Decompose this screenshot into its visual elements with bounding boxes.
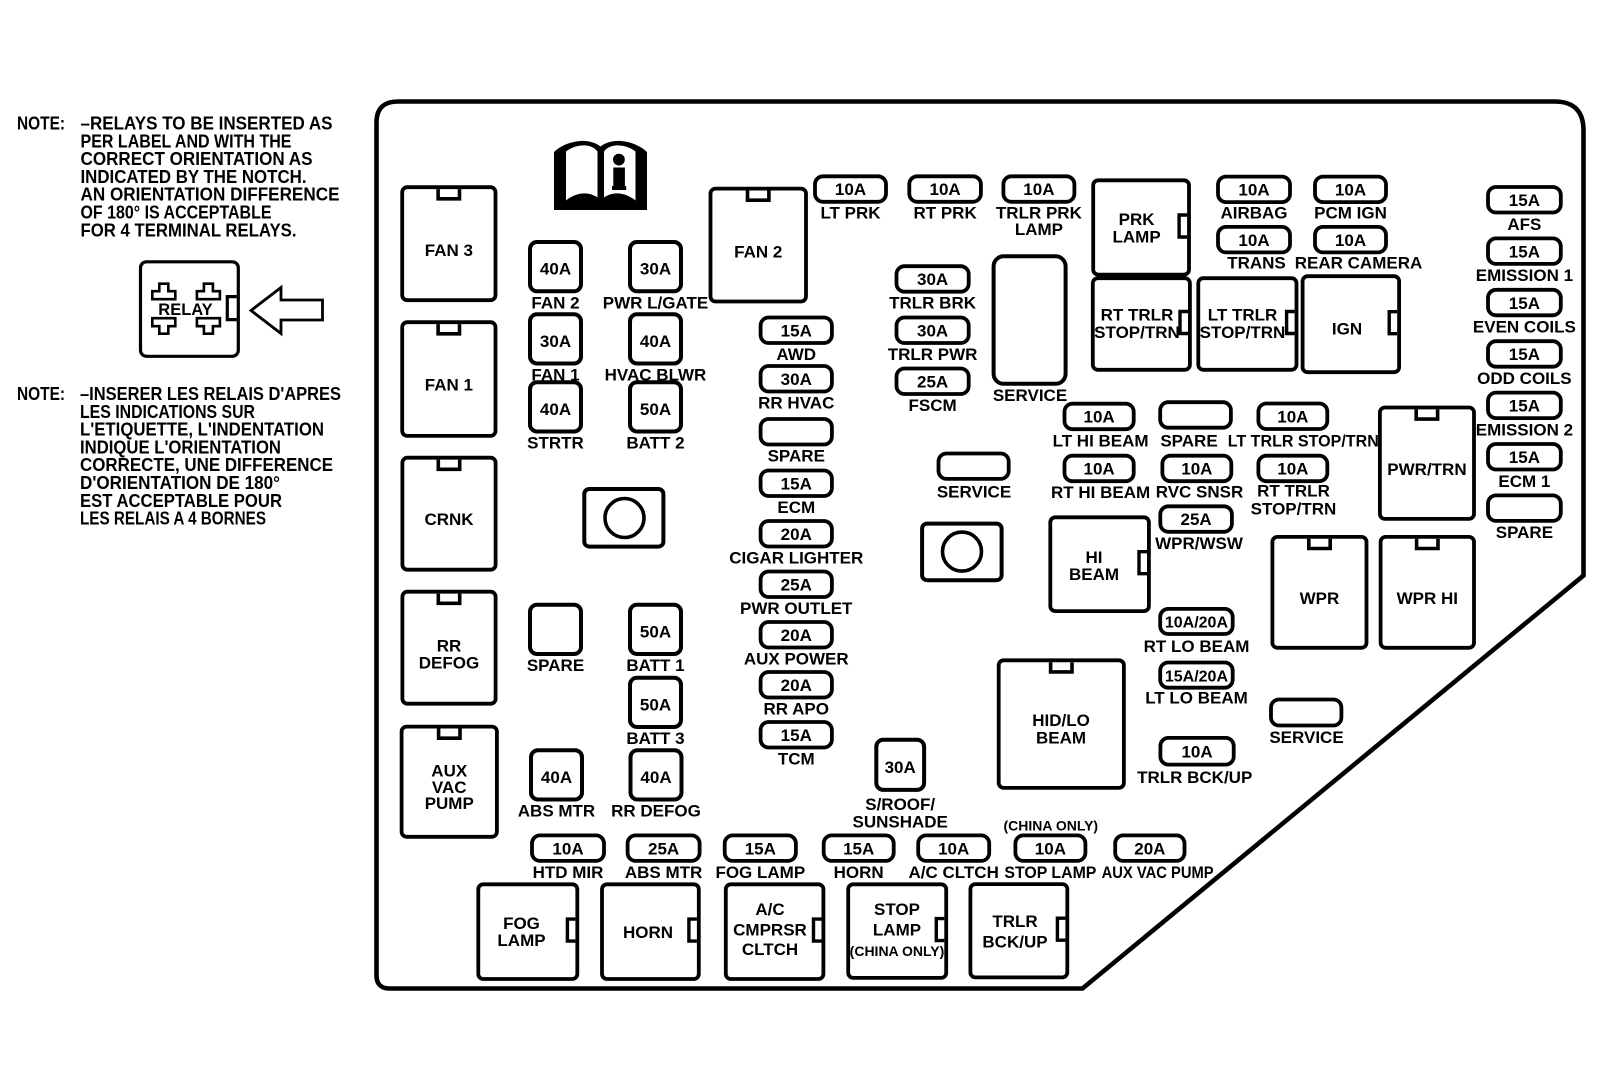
- svg-text:BEAM: BEAM: [1036, 729, 1086, 748]
- svg-text:BATT 2: BATT 2: [626, 434, 684, 453]
- svg-text:30A: 30A: [540, 332, 571, 351]
- svg-text:10A: 10A: [1084, 408, 1115, 427]
- svg-text:STOP LAMP: STOP LAMP: [1004, 863, 1096, 882]
- svg-text:15A: 15A: [1509, 191, 1540, 210]
- svg-text:15A: 15A: [745, 839, 776, 858]
- svg-text:FAN 2: FAN 2: [531, 293, 579, 312]
- svg-text:10A: 10A: [1277, 460, 1308, 479]
- svg-text:15A/20A: 15A/20A: [1165, 668, 1229, 685]
- svg-text:FAN 2: FAN 2: [734, 243, 782, 262]
- svg-text:BCK/UP: BCK/UP: [982, 932, 1047, 951]
- svg-text:10A: 10A: [1035, 839, 1066, 858]
- svg-text:A/C CLTCH: A/C CLTCH: [909, 863, 999, 882]
- svg-text:40A: 40A: [541, 768, 572, 787]
- svg-text:TCM: TCM: [778, 750, 815, 769]
- svg-text:20A: 20A: [781, 626, 812, 645]
- svg-text:BATT 3: BATT 3: [626, 729, 684, 748]
- svg-text:TRLR PWR: TRLR PWR: [888, 345, 978, 364]
- svg-text:10A: 10A: [1277, 407, 1308, 426]
- svg-text:10A: 10A: [1023, 180, 1054, 199]
- svg-text:IGN: IGN: [1332, 320, 1362, 339]
- svg-text:CLTCH: CLTCH: [742, 940, 798, 959]
- svg-text:LT PRK: LT PRK: [820, 204, 881, 223]
- svg-text:FOR 4 TERMINAL RELAYS.: FOR 4 TERMINAL RELAYS.: [81, 219, 297, 240]
- svg-text:LT TRLR: LT TRLR: [1208, 306, 1278, 325]
- svg-text:30A: 30A: [917, 270, 948, 289]
- svg-text:S/ROOF/: S/ROOF/: [865, 795, 935, 814]
- svg-text:FOG LAMP: FOG LAMP: [715, 863, 805, 882]
- svg-text:A/C: A/C: [755, 900, 784, 919]
- svg-text:ABS MTR: ABS MTR: [625, 863, 702, 882]
- svg-text:FAN 3: FAN 3: [425, 241, 473, 260]
- svg-text:NOTE:: NOTE:: [17, 113, 65, 134]
- svg-text:15A: 15A: [843, 839, 874, 858]
- svg-text:30A: 30A: [885, 758, 916, 777]
- svg-text:PWR L/GATE: PWR L/GATE: [603, 293, 708, 312]
- svg-text:RR HVAC: RR HVAC: [758, 394, 834, 413]
- svg-text:30A: 30A: [640, 260, 671, 279]
- svg-text:10A: 10A: [1335, 181, 1366, 200]
- svg-text:CMPRSR: CMPRSR: [733, 920, 807, 939]
- svg-text:RT TRLR: RT TRLR: [1257, 482, 1330, 501]
- svg-text:LAMP: LAMP: [1113, 227, 1161, 246]
- svg-text:PCM IGN: PCM IGN: [1314, 204, 1387, 223]
- svg-text:SPARE: SPARE: [768, 447, 825, 466]
- svg-text:REAR CAMERA: REAR CAMERA: [1295, 254, 1423, 273]
- svg-text:NOTE:: NOTE:: [17, 383, 65, 404]
- svg-text:40A: 40A: [540, 260, 571, 279]
- svg-text:WPR/WSW: WPR/WSW: [1155, 534, 1244, 553]
- svg-text:HORN: HORN: [623, 923, 673, 942]
- svg-text:10A: 10A: [930, 180, 961, 199]
- svg-text:FSCM: FSCM: [909, 396, 957, 415]
- svg-text:15A: 15A: [1509, 242, 1540, 261]
- svg-text:15A: 15A: [781, 726, 812, 745]
- svg-text:WPR HI: WPR HI: [1397, 589, 1458, 608]
- svg-text:15A: 15A: [1509, 294, 1540, 313]
- svg-text:PWR OUTLET: PWR OUTLET: [740, 599, 853, 618]
- svg-text:LAMP: LAMP: [873, 920, 921, 939]
- svg-text:(CHINA ONLY): (CHINA ONLY): [850, 943, 945, 959]
- svg-text:STRTR: STRTR: [527, 434, 584, 453]
- svg-text:AUX POWER: AUX POWER: [744, 650, 849, 669]
- svg-text:RVC SNSR: RVC SNSR: [1156, 483, 1244, 502]
- svg-text:10A: 10A: [835, 180, 866, 199]
- svg-text:LES RELAIS A 4 BORNES: LES RELAIS A 4 BORNES: [80, 508, 266, 529]
- svg-text:(CHINA ONLY): (CHINA ONLY): [1003, 818, 1098, 834]
- svg-text:RT HI BEAM: RT HI BEAM: [1051, 483, 1150, 502]
- svg-text:BATT 1: BATT 1: [626, 656, 684, 675]
- svg-text:SPARE: SPARE: [1160, 432, 1217, 451]
- svg-text:10A: 10A: [938, 839, 969, 858]
- svg-text:AWD: AWD: [776, 345, 816, 364]
- svg-text:STOP/TRN: STOP/TRN: [1094, 323, 1180, 342]
- svg-text:30A: 30A: [781, 370, 812, 389]
- svg-text:10A: 10A: [1181, 460, 1212, 479]
- svg-text:50A: 50A: [640, 622, 671, 641]
- svg-text:50A: 50A: [640, 400, 671, 419]
- svg-text:20A: 20A: [781, 525, 812, 544]
- svg-text:SPARE: SPARE: [1496, 523, 1553, 542]
- svg-text:SERVICE: SERVICE: [1269, 728, 1343, 747]
- svg-text:CRNK: CRNK: [424, 510, 474, 529]
- svg-text:PWR/TRN: PWR/TRN: [1387, 460, 1466, 479]
- svg-text:20A: 20A: [1134, 839, 1165, 858]
- svg-text:10A: 10A: [1084, 460, 1115, 479]
- svg-text:HTD MIR: HTD MIR: [533, 863, 604, 882]
- svg-text:WPR: WPR: [1300, 589, 1340, 608]
- svg-text:TRLR BRK: TRLR BRK: [889, 294, 977, 313]
- svg-text:LAMP: LAMP: [497, 931, 545, 950]
- svg-text:10A/20A: 10A/20A: [1165, 615, 1229, 632]
- svg-text:RR DEFOG: RR DEFOG: [611, 802, 701, 821]
- svg-text:LT HI BEAM: LT HI BEAM: [1053, 432, 1149, 451]
- svg-text:STOP: STOP: [874, 900, 920, 919]
- svg-text:10A: 10A: [552, 839, 583, 858]
- svg-text:SPARE: SPARE: [527, 656, 584, 675]
- svg-text:TRLR: TRLR: [992, 912, 1037, 931]
- svg-text:RR APO: RR APO: [764, 700, 830, 719]
- svg-text:10A: 10A: [1181, 743, 1212, 762]
- svg-text:ECM: ECM: [777, 498, 815, 517]
- svg-text:RT LO BEAM: RT LO BEAM: [1144, 637, 1250, 656]
- svg-text:10A: 10A: [1238, 231, 1269, 250]
- svg-text:EMISSION 1: EMISSION 1: [1476, 266, 1573, 285]
- svg-text:40A: 40A: [640, 768, 671, 787]
- svg-text:30A: 30A: [917, 321, 948, 340]
- svg-text:15A: 15A: [781, 321, 812, 340]
- svg-text:10A: 10A: [1238, 181, 1269, 200]
- svg-text:SERVICE: SERVICE: [937, 483, 1011, 502]
- svg-text:40A: 40A: [540, 400, 571, 419]
- svg-text:SUNSHADE: SUNSHADE: [852, 812, 947, 831]
- svg-text:TRLR BCK/UP: TRLR BCK/UP: [1137, 768, 1252, 787]
- svg-text:BEAM: BEAM: [1069, 565, 1119, 584]
- svg-text:FAN 1: FAN 1: [425, 375, 473, 394]
- svg-text:PUMP: PUMP: [425, 794, 474, 813]
- svg-text:RT TRLR: RT TRLR: [1101, 306, 1174, 325]
- svg-text:ABS MTR: ABS MTR: [518, 802, 595, 821]
- svg-text:HID/LO: HID/LO: [1032, 711, 1090, 730]
- svg-text:PRK: PRK: [1119, 210, 1156, 229]
- svg-text:EMISSION 2: EMISSION 2: [1476, 420, 1573, 439]
- svg-text:SERVICE: SERVICE: [993, 386, 1067, 405]
- svg-text:DEFOG: DEFOG: [419, 654, 479, 673]
- svg-text:40A: 40A: [640, 332, 671, 351]
- svg-text:ECM 1: ECM 1: [1498, 472, 1550, 491]
- svg-text:RT PRK: RT PRK: [913, 204, 977, 223]
- svg-text:25A: 25A: [781, 576, 812, 595]
- svg-text:15A: 15A: [1509, 345, 1540, 364]
- svg-text:LT TRLR STOP/TRN: LT TRLR STOP/TRN: [1228, 432, 1379, 451]
- svg-text:20A: 20A: [781, 676, 812, 695]
- svg-text:TRANS: TRANS: [1227, 254, 1286, 273]
- svg-text:AIRBAG: AIRBAG: [1220, 204, 1287, 223]
- svg-text:EVEN COILS: EVEN COILS: [1473, 318, 1576, 337]
- svg-text:25A: 25A: [917, 372, 948, 391]
- svg-text:RELAY: RELAY: [158, 301, 212, 319]
- svg-text:AFS: AFS: [1507, 215, 1541, 234]
- svg-text:CIGAR LIGHTER: CIGAR LIGHTER: [729, 549, 863, 568]
- svg-text:HORN: HORN: [834, 863, 884, 882]
- svg-text:ODD COILS: ODD COILS: [1477, 369, 1571, 388]
- svg-text:LAMP: LAMP: [1015, 220, 1063, 239]
- svg-text:STOP/TRN: STOP/TRN: [1200, 323, 1286, 342]
- svg-text:25A: 25A: [648, 839, 679, 858]
- svg-text:50A: 50A: [640, 695, 671, 714]
- svg-text:25A: 25A: [1181, 510, 1212, 529]
- svg-text:15A: 15A: [1509, 448, 1540, 467]
- svg-text:10A: 10A: [1335, 231, 1366, 250]
- svg-text:AUX VAC PUMP: AUX VAC PUMP: [1102, 863, 1214, 882]
- svg-text:15A: 15A: [781, 474, 812, 493]
- svg-text:STOP/TRN: STOP/TRN: [1251, 500, 1337, 519]
- svg-text:LT LO BEAM: LT LO BEAM: [1145, 689, 1248, 708]
- svg-text:15A: 15A: [1509, 397, 1540, 416]
